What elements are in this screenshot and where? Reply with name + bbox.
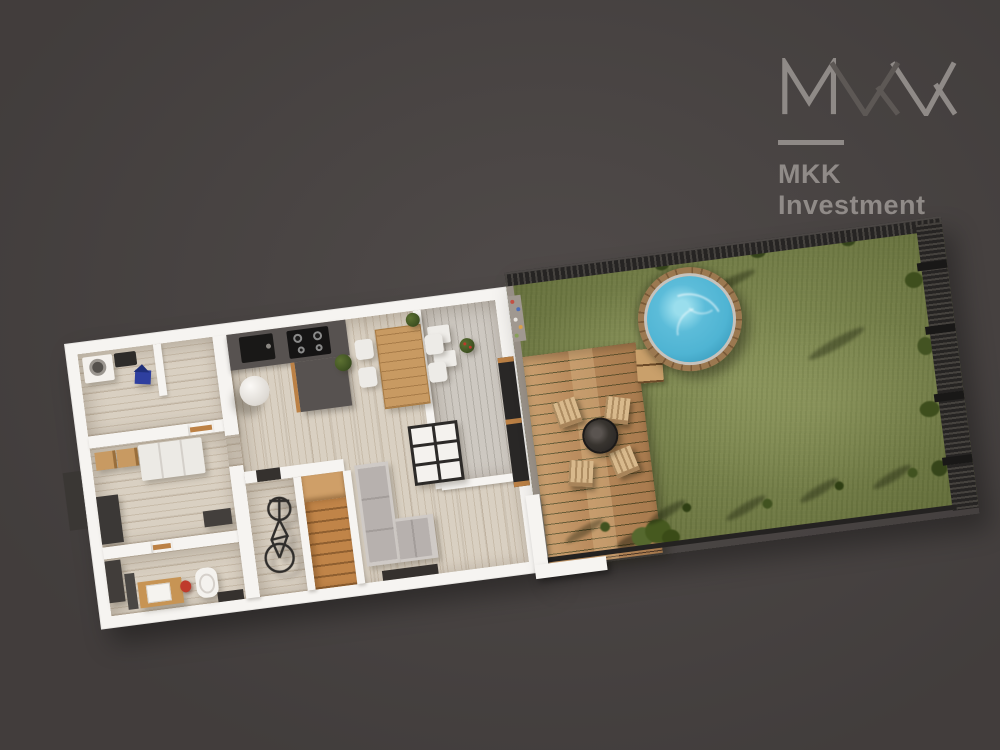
entry-porch <box>63 471 88 531</box>
pebble <box>516 307 520 311</box>
dining-chair <box>358 366 378 388</box>
monogram-letter-k2 <box>892 63 955 114</box>
mkk-monogram-icon <box>778 58 960 116</box>
pebble <box>513 317 517 321</box>
entry-door-opening <box>217 589 244 602</box>
dining-chair <box>354 338 374 360</box>
floor-utility-room <box>77 337 223 437</box>
floor-plan-plot <box>64 230 980 630</box>
door-frame-wood <box>514 480 531 487</box>
brand-logo: MKK Investment <box>778 58 960 221</box>
cooktop <box>286 326 331 359</box>
door-threshold <box>153 543 171 550</box>
coffee-table-panel <box>413 445 435 464</box>
sofa-cushions <box>396 518 433 560</box>
garden <box>504 216 979 570</box>
monogram-letter-m <box>785 63 834 114</box>
monogram-letter-k1 <box>832 63 898 114</box>
blue-toy-roof <box>134 364 150 373</box>
pebble <box>518 325 522 329</box>
deck-chair <box>568 460 593 487</box>
coffee-table-panel <box>437 442 459 461</box>
coffee-table-panel <box>411 426 433 445</box>
house-footprint <box>64 287 543 630</box>
nightstand <box>94 450 117 471</box>
logo-rule <box>778 140 844 145</box>
coffee-table-panel <box>439 461 461 480</box>
render-canvas: MKK Investment <box>0 0 1000 750</box>
pebble <box>514 333 518 337</box>
coffee-table-panel <box>434 423 456 442</box>
sink-basin <box>146 582 172 603</box>
pebble <box>510 300 514 304</box>
dining-chair <box>424 333 444 355</box>
coffee-table <box>407 420 464 486</box>
coffee-table-panel <box>416 464 438 483</box>
door-threshold <box>190 425 212 433</box>
dining-chair <box>428 361 448 383</box>
nightstand <box>116 447 139 468</box>
brand-name: MKK <box>778 159 960 190</box>
pool-water <box>638 268 741 371</box>
